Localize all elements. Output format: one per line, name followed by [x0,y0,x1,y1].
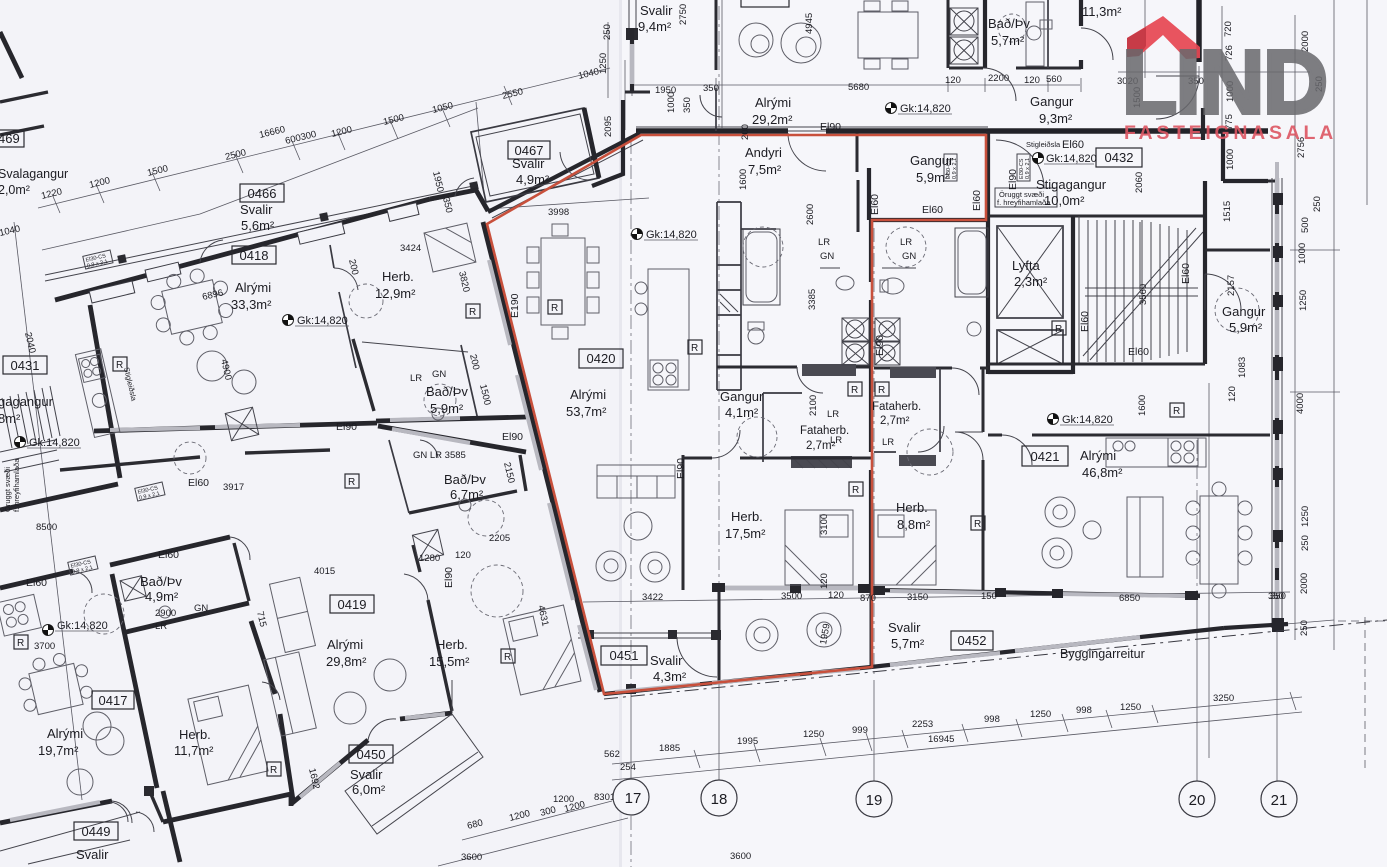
svg-text:0418: 0418 [240,248,269,263]
svg-text:0466: 0466 [248,186,277,201]
svg-text:Svalir: Svalir [240,202,273,217]
svg-text:120: 120 [1024,75,1040,86]
svg-text:Gk:14,820: Gk:14,820 [900,103,951,115]
svg-text:3250: 3250 [1213,693,1234,704]
svg-text:Herb.: Herb. [179,727,211,742]
svg-text:Gk:14,820: Gk:14,820 [57,620,108,632]
svg-text:LR: LR [155,621,167,632]
svg-text:1000: 1000 [1225,149,1236,170]
svg-text:7,5m²: 7,5m² [748,162,782,177]
svg-text:3424: 3424 [400,243,421,254]
svg-text:Herb.: Herb. [436,637,468,652]
svg-text:5680: 5680 [848,82,869,93]
svg-text:LR: LR [830,435,842,446]
svg-text:El60: El60 [158,549,179,561]
svg-text:9,4m²: 9,4m² [638,19,672,34]
svg-text:3917: 3917 [223,482,244,493]
svg-text:LIND: LIND [1122,33,1332,133]
svg-text:4000: 4000 [1295,393,1306,414]
svg-text:998: 998 [1076,705,1092,716]
svg-text:469: 469 [0,131,20,146]
svg-text:2600: 2600 [805,204,816,225]
svg-text:f. hreyfihamlaða: f. hreyfihamlaða [997,198,1051,207]
svg-text:2900: 2900 [155,608,176,619]
svg-text:3150: 3150 [907,592,928,603]
svg-text:Gangur: Gangur [720,389,764,404]
svg-text:GN LR 3585: GN LR 3585 [413,450,466,461]
svg-text:El60: El60 [188,477,209,489]
svg-text:2060: 2060 [1134,172,1145,193]
svg-text:GN: GN [432,369,446,380]
svg-text:3422: 3422 [642,592,663,603]
svg-text:870: 870 [860,593,876,604]
svg-text:E190: E190 [509,293,521,318]
svg-text:LR: LR [818,237,830,248]
svg-text:4,1m²: 4,1m² [725,405,759,420]
svg-text:R: R [270,765,277,776]
svg-text:5,7m²: 5,7m² [891,636,925,651]
svg-text:FASTEIGNASALA: FASTEIGNASALA [1124,122,1336,144]
svg-text:0419: 0419 [338,597,367,612]
svg-text:Fataherb.: Fataherb. [872,401,921,413]
svg-text:LR: LR [900,237,912,248]
svg-text:1083: 1083 [1237,357,1248,378]
svg-text:53,7m²: 53,7m² [566,404,607,419]
svg-text:1280: 1280 [419,553,440,564]
svg-text:3100: 3100 [819,514,830,535]
svg-text:El90: El90 [336,421,357,433]
svg-text:350: 350 [703,83,719,94]
svg-text:1250: 1250 [803,729,824,740]
svg-text:6,7m²: 6,7m² [450,487,484,502]
svg-text:500: 500 [1300,217,1311,233]
svg-text:6850: 6850 [1119,593,1140,604]
svg-text:11,7m²: 11,7m² [174,743,214,758]
svg-text:998: 998 [984,714,1000,725]
svg-text:El60: El60 [1079,311,1091,332]
svg-text:El60: El60 [922,204,943,216]
svg-text:Gk:14,820: Gk:14,820 [297,315,348,327]
svg-text:1995: 1995 [737,736,758,747]
svg-text:Gk:14,820: Gk:14,820 [1046,153,1097,165]
svg-text:Bað/Þv: Bað/Þv [426,384,468,399]
svg-text:250: 250 [1312,196,1323,212]
svg-text:250: 250 [1299,620,1310,636]
svg-text:Andyri: Andyri [745,145,782,160]
svg-text:19: 19 [866,792,883,809]
svg-text:R: R [691,343,698,354]
svg-text:1885: 1885 [659,743,680,754]
svg-text:4945: 4945 [804,13,815,34]
svg-text:1600: 1600 [738,169,749,190]
svg-text:Alrými: Alrými [755,95,791,110]
svg-text:R: R [116,360,123,371]
svg-text:3560: 3560 [1138,284,1149,305]
svg-text:1600: 1600 [1137,395,1148,416]
svg-text:2,7m²: 2,7m² [880,415,910,427]
svg-text:Svalir: Svalir [650,653,683,668]
svg-text:R: R [1055,324,1062,335]
svg-text:R: R [974,519,981,530]
svg-text:0421: 0421 [1031,449,1060,464]
svg-text:350: 350 [1270,591,1286,602]
svg-text:El90: El90 [675,458,687,479]
svg-text:El60: El60 [971,190,983,211]
svg-text:Öruggt svæði: Öruggt svæði [3,467,12,512]
svg-text:999: 999 [852,725,868,736]
svg-text:5,9m²: 5,9m² [1229,320,1263,335]
svg-text:3700: 3700 [34,641,55,652]
svg-text:0420: 0420 [587,351,616,366]
svg-text:1250: 1250 [598,53,609,74]
svg-text:Svalir: Svalir [512,156,545,171]
svg-text:1250: 1250 [1300,506,1311,527]
svg-text:0,9 x 2,1: 0,9 x 2,1 [952,158,958,179]
svg-text:2000: 2000 [1299,573,1310,594]
svg-text:5,6m²: 5,6m² [241,218,275,233]
svg-text:El60: El60 [26,577,47,589]
svg-text:1250: 1250 [1298,290,1309,311]
svg-text:R: R [878,385,885,396]
svg-text:562: 562 [604,749,620,760]
svg-text:19,7m²: 19,7m² [38,743,79,758]
svg-text:1000: 1000 [1297,243,1308,264]
svg-text:Stigagangur: Stigagangur [1036,177,1107,192]
svg-text:0432: 0432 [1105,150,1134,165]
svg-text:Lyfta: Lyfta [1012,258,1040,273]
svg-text:1515: 1515 [1222,201,1233,222]
svg-text:Svalagangur: Svalagangur [0,167,68,181]
svg-text:2157: 2157 [1226,275,1237,296]
svg-text:120: 120 [455,550,471,561]
svg-text:17: 17 [625,790,642,807]
svg-text:21: 21 [1271,792,1288,809]
svg-text:120: 120 [828,590,844,601]
svg-text:GN: GN [194,603,208,614]
svg-text:Bað/Þv: Bað/Þv [988,16,1030,31]
svg-text:9,3m²: 9,3m² [1039,111,1073,126]
svg-text:R: R [551,303,558,314]
svg-text:El90: El90 [820,121,841,133]
svg-text:3385: 3385 [807,289,818,310]
svg-text:El90: El90 [443,567,455,588]
svg-text:R: R [469,307,476,318]
svg-text:El60: El60 [1062,139,1084,151]
svg-text:Gk:14,820: Gk:14,820 [1062,414,1113,426]
svg-text:El60: El60 [1128,346,1149,358]
svg-text:5,7m²: 5,7m² [991,33,1025,48]
svg-text:3600: 3600 [730,851,751,862]
svg-text:1250: 1250 [1120,702,1141,713]
svg-text:12,9m²: 12,9m² [375,286,416,301]
svg-text:2750: 2750 [678,4,689,25]
svg-text:Herb.: Herb. [896,500,928,515]
svg-text:LR: LR [827,409,839,420]
svg-text:2253: 2253 [912,719,933,730]
svg-text:2200: 2200 [988,73,1009,84]
svg-text:0451: 0451 [610,648,639,663]
svg-text:8301: 8301 [594,792,615,803]
svg-text:Gk:14,820: Gk:14,820 [29,437,80,449]
svg-text:0452: 0452 [958,633,987,648]
svg-text:Herb.: Herb. [382,269,414,284]
svg-text:4,9m²: 4,9m² [516,172,550,187]
svg-text:33,3m²: 33,3m² [231,297,272,312]
svg-text:R: R [1173,406,1180,417]
svg-text:3998: 3998 [548,207,569,218]
svg-text:6,0m²: 6,0m² [352,782,386,797]
svg-text:0449: 0449 [82,824,111,839]
svg-text:Stigleiðsla: Stigleiðsla [1026,140,1061,149]
svg-text:4,3m²: 4,3m² [653,669,687,684]
svg-text:El60: El60 [1180,263,1192,284]
svg-text:gagangur: gagangur [0,394,54,409]
svg-text:2,0m²: 2,0m² [0,183,30,197]
svg-text:350: 350 [682,97,693,113]
svg-text:11,3m²: 11,3m² [1082,4,1122,19]
svg-text:200: 200 [740,124,751,140]
svg-text:4,9m²: 4,9m² [145,589,179,604]
svg-text:Alrými: Alrými [47,726,83,741]
svg-text:2,3m²: 2,3m² [1014,274,1048,289]
svg-text:0417: 0417 [99,693,128,708]
svg-text:1250: 1250 [1030,709,1051,720]
svg-text:Svalir: Svalir [888,620,921,635]
svg-text:29,8m²: 29,8m² [326,654,367,669]
svg-text:8500: 8500 [36,522,57,533]
svg-text:120: 120 [945,75,961,86]
svg-text:Gangur: Gangur [1222,304,1266,319]
svg-text:R: R [852,485,859,496]
svg-text:Bað/Þv: Bað/Þv [444,472,486,487]
svg-text:R: R [17,638,24,649]
svg-text:El90: El90 [874,335,886,356]
svg-text:Svalir: Svalir [640,3,673,18]
svg-text:2205: 2205 [489,533,510,544]
svg-text:2095: 2095 [603,116,614,137]
svg-text:0450: 0450 [357,747,386,762]
svg-text:3500: 3500 [781,591,802,602]
svg-text:4015: 4015 [314,566,335,577]
svg-text:8,8m²: 8,8m² [897,517,931,532]
svg-text:15,5m²: 15,5m² [429,654,470,669]
svg-text:El90: El90 [502,431,523,443]
svg-text:Herb.: Herb. [731,509,763,524]
svg-text:Byggingarreitur: Byggingarreitur [1060,647,1145,661]
svg-text:250: 250 [1300,535,1311,551]
svg-text:120: 120 [1227,386,1238,402]
svg-text:254: 254 [620,762,636,773]
svg-text:R: R [348,477,355,488]
svg-text:Gk:14,820: Gk:14,820 [646,229,697,241]
svg-text:Gangur: Gangur [1030,94,1074,109]
svg-text:0,9 x 2,1: 0,9 x 2,1 [1025,158,1031,179]
svg-text:Alrými: Alrými [1080,448,1116,463]
svg-text:R: R [851,385,858,396]
svg-text:Bað/Þv: Bað/Þv [140,574,182,589]
svg-text:3600: 3600 [461,852,482,863]
svg-text:29,2m²: 29,2m² [752,112,793,127]
svg-text:120: 120 [819,573,830,589]
svg-text:Svalir: Svalir [76,847,109,862]
svg-text:20: 20 [1189,792,1206,809]
svg-text:R: R [504,652,511,663]
svg-text:Svalir: Svalir [350,767,383,782]
svg-text:1000: 1000 [666,92,677,113]
svg-text:LR: LR [410,373,422,384]
svg-text:5,9m²: 5,9m² [916,170,950,185]
svg-text:0431: 0431 [11,358,40,373]
svg-text:GN: GN [902,251,916,262]
svg-text:f. hreyfihamlaða: f. hreyfihamlaða [12,458,21,512]
svg-text:El60: El60 [869,194,881,215]
svg-text:150: 150 [981,591,997,602]
svg-text:2100: 2100 [808,395,819,416]
svg-text:16945: 16945 [928,734,954,745]
svg-text:46,8m²: 46,8m² [1082,465,1123,480]
svg-text:GN: GN [820,251,834,262]
svg-text:250: 250 [602,24,613,40]
svg-text:560: 560 [1046,74,1062,85]
svg-text:18: 18 [711,791,728,808]
svg-text:17,5m²: 17,5m² [725,526,766,541]
svg-text:Alrými: Alrými [235,280,271,295]
svg-text:8m²: 8m² [0,411,21,426]
svg-text:5,9m²: 5,9m² [430,401,464,416]
svg-text:Alrými: Alrými [327,637,363,652]
svg-text:Alrými: Alrými [570,387,606,402]
svg-text:LR: LR [882,437,894,448]
